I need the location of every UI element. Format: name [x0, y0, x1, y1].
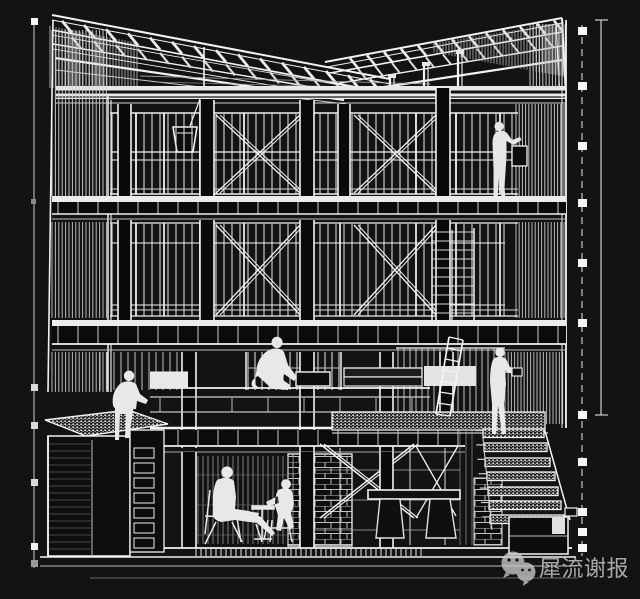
svg-text:犀流谢报: 犀流谢报 [539, 556, 629, 581]
